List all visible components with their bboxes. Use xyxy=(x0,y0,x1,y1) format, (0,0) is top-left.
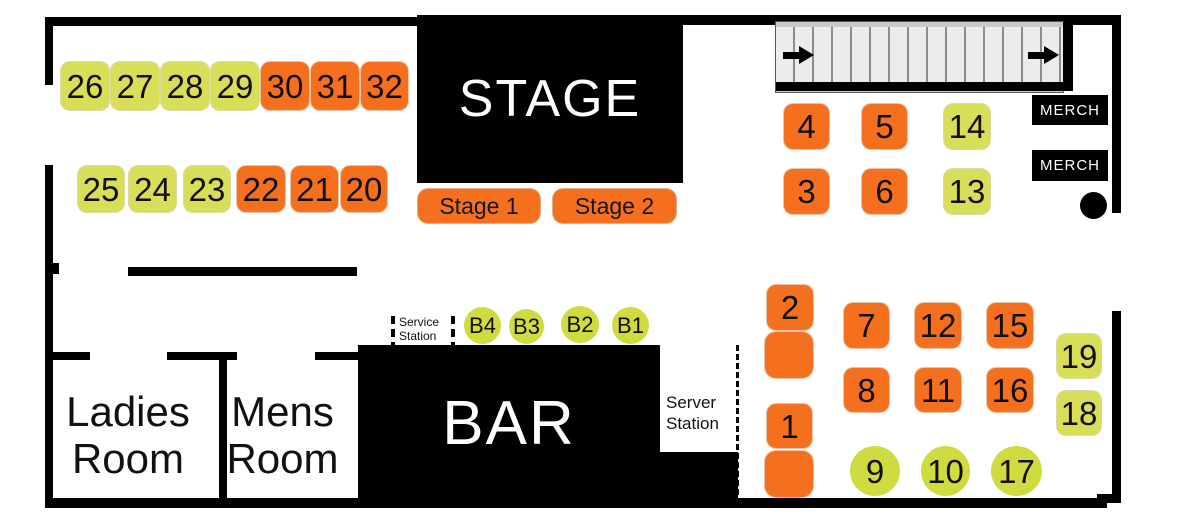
stage-area: STAGE xyxy=(417,15,683,183)
table-8[interactable]: 8 xyxy=(844,368,889,412)
wall-right-lower xyxy=(1112,311,1121,503)
table-19[interactable]: 19 xyxy=(1057,334,1101,378)
bar-extension xyxy=(658,452,738,499)
merch-stand-2: MERCH xyxy=(1032,150,1108,181)
table-28[interactable]: 28 xyxy=(161,62,209,110)
table-10[interactable]: 10 xyxy=(921,446,970,496)
table-11[interactable]: 11 xyxy=(915,368,961,412)
table-b2[interactable]: B2 xyxy=(561,306,599,343)
table-21[interactable]: 21 xyxy=(291,166,338,212)
table-16[interactable]: 16 xyxy=(987,368,1033,412)
wall-left-lower xyxy=(45,165,53,508)
table-29[interactable]: 29 xyxy=(211,62,259,110)
table-22[interactable]: 22 xyxy=(237,166,285,212)
table-1[interactable]: 1 xyxy=(767,404,812,448)
stage-1-label: Stage 1 xyxy=(439,193,518,220)
table-17[interactable]: 17 xyxy=(991,446,1042,496)
server-station-label: Server Station xyxy=(666,392,738,435)
table-23[interactable]: 23 xyxy=(184,166,230,212)
bar-area: BAR xyxy=(358,345,660,501)
table-13[interactable]: 13 xyxy=(944,169,990,214)
table-31[interactable]: 31 xyxy=(311,62,359,110)
service-station-dash-left xyxy=(391,316,395,350)
table-14[interactable]: 14 xyxy=(944,104,990,149)
server-station-dash-line xyxy=(736,345,739,495)
table-27[interactable]: 27 xyxy=(111,62,159,110)
venue-floor-plan: STAGE Stage 1 Stage 2 BAR MERCH MERCH La… xyxy=(0,0,1200,525)
table-6[interactable]: 6 xyxy=(862,169,907,214)
restroom-wall-1 xyxy=(45,352,90,360)
table-seat[interactable] xyxy=(765,451,813,497)
table-20[interactable]: 20 xyxy=(341,166,387,212)
table-b1[interactable]: B1 xyxy=(612,307,649,344)
bar-title: BAR xyxy=(442,388,575,459)
table-9[interactable]: 9 xyxy=(850,446,900,496)
table-24[interactable]: 24 xyxy=(129,166,176,212)
service-station-label: Service Station xyxy=(399,316,451,344)
stairs-border-bottom xyxy=(776,82,1073,91)
half-wall xyxy=(128,267,357,276)
wall-left-upper xyxy=(45,17,53,85)
stairs-arrow-left-icon xyxy=(783,46,815,64)
wall-right-upper xyxy=(1112,15,1121,213)
table-7[interactable]: 7 xyxy=(844,303,889,348)
table-12[interactable]: 12 xyxy=(915,303,961,348)
stage-2-label: Stage 2 xyxy=(575,193,654,220)
table-2[interactable]: 2 xyxy=(767,285,813,330)
merch-stand-1: MERCH xyxy=(1032,95,1108,125)
restroom-wall-3 xyxy=(315,352,359,360)
stairs-border-right xyxy=(1063,22,1073,91)
table-5[interactable]: 5 xyxy=(862,104,907,149)
service-station-dash-right xyxy=(451,316,455,350)
table-4[interactable]: 4 xyxy=(784,104,829,149)
table-3[interactable]: 3 xyxy=(784,169,829,214)
merch-2-label: MERCH xyxy=(1040,157,1100,174)
ladies-room-label: Ladies Room xyxy=(58,388,198,482)
table-b4[interactable]: B4 xyxy=(464,307,501,344)
table-25[interactable]: 25 xyxy=(78,166,124,212)
table-seat[interactable] xyxy=(765,332,813,378)
table-32[interactable]: 32 xyxy=(361,62,408,110)
stage-2-zone[interactable]: Stage 2 xyxy=(553,189,676,223)
table-18[interactable]: 18 xyxy=(1057,391,1101,435)
stage-1-zone[interactable]: Stage 1 xyxy=(418,189,540,223)
table-15[interactable]: 15 xyxy=(987,303,1033,348)
table-30[interactable]: 30 xyxy=(261,62,309,110)
table-26[interactable]: 26 xyxy=(61,62,109,110)
table-b3[interactable]: B3 xyxy=(509,309,544,344)
merch-1-label: MERCH xyxy=(1040,102,1100,119)
black-dot-marker-icon xyxy=(1080,192,1107,219)
wall-top-left xyxy=(45,17,417,26)
wall-left-notch xyxy=(53,263,59,274)
stairs-arrow-right-icon xyxy=(1028,46,1060,64)
stage-title: STAGE xyxy=(459,69,641,129)
mens-room-label: Mens Room xyxy=(225,388,340,482)
